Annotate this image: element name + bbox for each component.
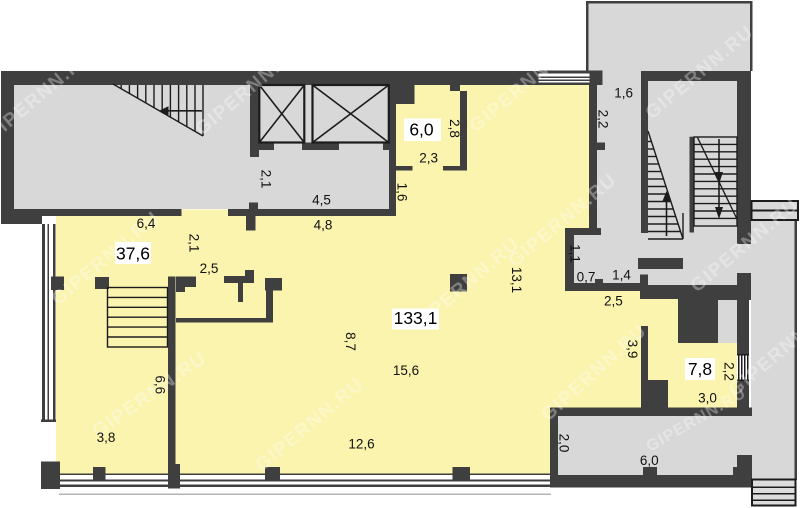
svg-text:13,1: 13,1 <box>509 267 524 293</box>
svg-text:1,4: 1,4 <box>612 268 631 283</box>
svg-text:2,5: 2,5 <box>200 261 219 276</box>
svg-text:6,0: 6,0 <box>640 453 659 468</box>
svg-text:3,0: 3,0 <box>698 391 717 406</box>
svg-text:7,8: 7,8 <box>688 359 712 379</box>
svg-text:4,8: 4,8 <box>314 218 333 233</box>
svg-text:2,2: 2,2 <box>596 110 611 129</box>
svg-text:8,7: 8,7 <box>343 332 358 351</box>
svg-text:1,1: 1,1 <box>568 244 583 263</box>
svg-text:0,7: 0,7 <box>577 270 596 285</box>
svg-text:6,6: 6,6 <box>153 375 168 394</box>
svg-text:4,5: 4,5 <box>312 193 331 208</box>
svg-text:2,8: 2,8 <box>447 119 462 138</box>
svg-text:1,6: 1,6 <box>395 183 410 202</box>
svg-text:2,1: 2,1 <box>259 170 274 189</box>
svg-text:3,9: 3,9 <box>625 340 640 359</box>
svg-text:6,0: 6,0 <box>409 120 434 140</box>
svg-text:133,1: 133,1 <box>394 308 438 328</box>
svg-text:37,6: 37,6 <box>116 244 150 264</box>
svg-text:1,6: 1,6 <box>614 86 633 101</box>
svg-text:2,1: 2,1 <box>187 234 202 253</box>
svg-text:2,5: 2,5 <box>604 294 623 309</box>
svg-text:12,6: 12,6 <box>348 437 374 452</box>
svg-text:2,3: 2,3 <box>419 151 438 166</box>
svg-text:3,8: 3,8 <box>97 430 116 445</box>
svg-text:2,2: 2,2 <box>722 362 737 381</box>
svg-text:15,6: 15,6 <box>393 363 419 378</box>
svg-text:6,4: 6,4 <box>137 216 156 231</box>
svg-text:2,0: 2,0 <box>557 434 572 453</box>
